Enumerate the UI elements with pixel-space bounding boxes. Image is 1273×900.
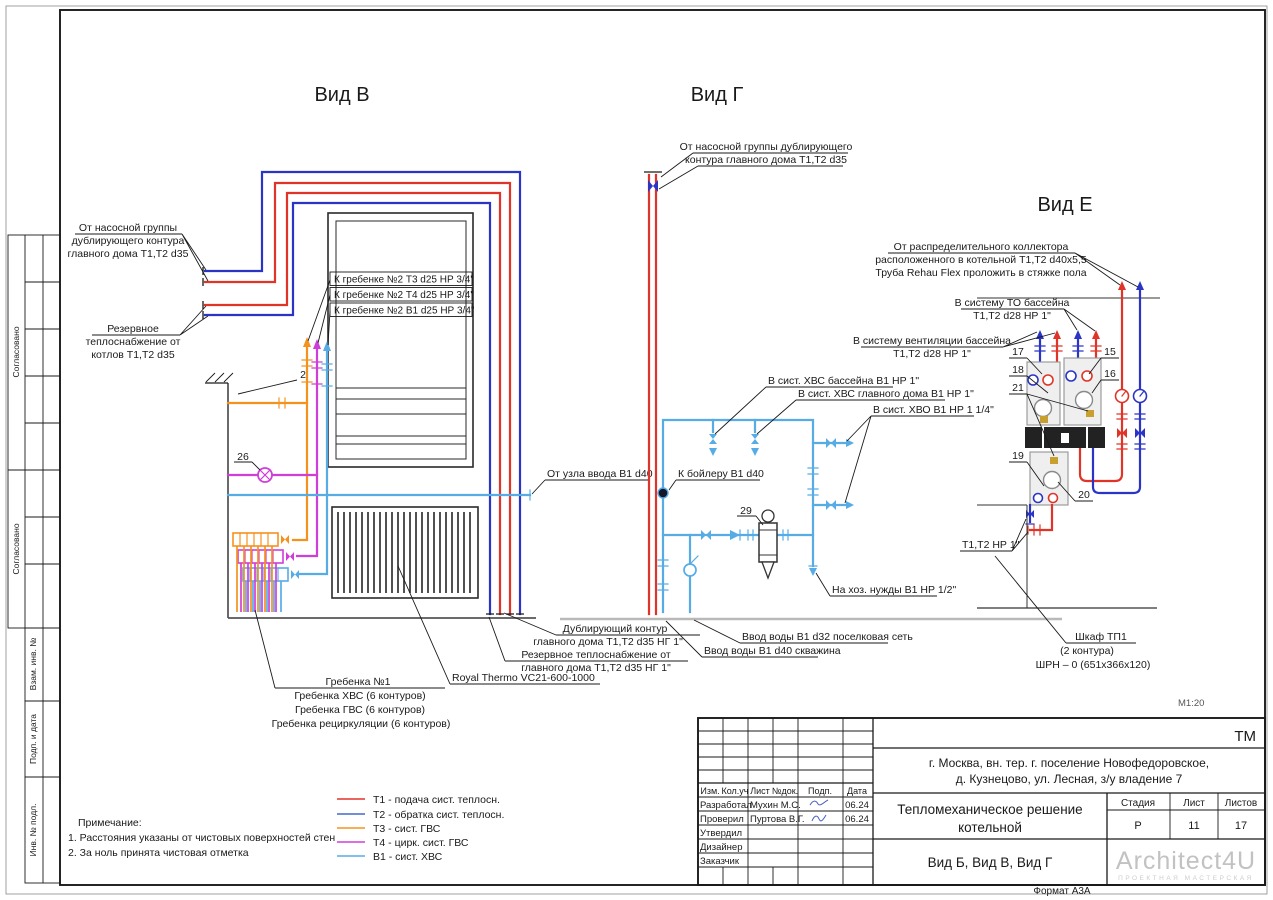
label-vvod-d32: Ввод воды В1 d32 поселковая сеть	[742, 631, 913, 643]
sheet-title: Вид Б, Вид В, Вид Г	[928, 855, 1053, 870]
legend-item-t1: Т1 - подача сист. теплосн.	[373, 794, 500, 806]
row-date-1: 06.24	[845, 814, 869, 825]
boiler-tap-point	[658, 488, 668, 498]
scale-note: М1:20	[1178, 698, 1204, 709]
label-greb2-t4: К гребенке №2 Т4 d25 НР 3/4"	[334, 289, 474, 301]
label-collector-2: расположенного в котельной Т1,Т2 d40х5,5	[875, 254, 1087, 266]
stage-value: Р	[1134, 820, 1141, 832]
format-note: Формат А3А	[1033, 886, 1091, 897]
label-manifold-1: Гребенка №1	[326, 676, 391, 688]
view-g-title: Вид Г	[691, 84, 744, 106]
pos-number-15: 15	[1104, 346, 1116, 358]
col-podp: Подп.	[808, 786, 832, 796]
label-pump-group-2: дублирующего контура	[72, 235, 185, 247]
address-line-1: г. Москва, вн. тер. г. поселение Новофед…	[929, 756, 1209, 770]
signature	[810, 800, 828, 805]
doc-code: ТМ	[1234, 728, 1256, 745]
row-role-1: Проверил	[700, 814, 744, 825]
notes: Примечание: 1. Расстояния указаны от чис…	[68, 817, 335, 859]
pos-number-26: 26	[237, 451, 249, 463]
stamp-agreed-2: Согласовано	[11, 523, 21, 574]
pos-number-20: 20	[1078, 489, 1090, 501]
label-hvo: В сист. ХВО В1 НР 1 1/4"	[873, 404, 994, 416]
pos-number-21: 21	[1012, 382, 1024, 394]
label-pump-group-1: От насосной группы	[79, 222, 177, 234]
doc-title-2: котельной	[958, 820, 1022, 835]
legend-item-t4: Т4 - цирк. сист. ГВС	[373, 837, 469, 849]
pump-icon	[1076, 392, 1093, 409]
notes-line-1: 1. Расстояния указаны от чистовых поверх…	[68, 832, 335, 844]
row-name-1: Пуртова В.Г.	[750, 814, 805, 825]
pos-number-29: 29	[740, 505, 752, 517]
stamp-inv-podl: Инв. № подл.	[28, 804, 38, 857]
label-greb2-t3: К гребенке №2 Т3 d25 НР 3/4"	[334, 274, 474, 286]
label-shkaf-1: Шкаф ТП1	[1075, 631, 1127, 643]
title-block: ТМ г. Москва, вн. тер. г. поселение Ново…	[698, 718, 1265, 885]
label-manifold-4: Гребенка рециркуляции (6 контуров)	[272, 718, 451, 730]
stamp-agreed-1: Согласовано	[11, 326, 21, 377]
stamp-vzam-inv: Взам. инв. №	[28, 638, 38, 691]
label-shkaf-2: (2 контура)	[1060, 645, 1114, 657]
label-dubl-1: Дублирующий контур	[563, 623, 668, 635]
label-vent-pool-2: Т1,Т2 d28 НР 1"	[893, 348, 971, 360]
pump-icon	[1035, 400, 1052, 417]
label-collector-1: От распределительного коллектора	[894, 241, 1069, 253]
stamp-podp-data: Подп. и дата	[28, 714, 38, 764]
pos-number-18: 18	[1012, 364, 1024, 376]
label-manifold-2: Гребенка ХВС (6 контуров)	[294, 690, 425, 702]
notes-line-2: 2. За ноль принята чистовая отметка	[68, 847, 249, 859]
notes-heading: Примечание:	[78, 817, 142, 829]
view-e-title: Вид Е	[1037, 194, 1092, 216]
row-role-3: Дизайнер	[700, 842, 743, 853]
signature	[812, 815, 826, 821]
listov-header: Листов	[1225, 798, 1258, 809]
label-uzel-vvoda: От узла ввода В1 d40	[547, 468, 653, 480]
list-value: 11	[1188, 820, 1199, 832]
pos-number-17: 17	[1012, 346, 1024, 358]
label-to-pool-1: В систему ТО бассейна	[955, 297, 1070, 309]
legend-item-t2: Т2 - обратка сист. теплосн.	[373, 809, 504, 821]
legend: Т1 - подача сист. теплосн. Т2 - обратка …	[337, 794, 504, 863]
legend-item-t3: Т3 - сист. ГВС	[373, 823, 441, 835]
col-koluch: Кол.уч	[722, 786, 749, 796]
doc-title-1: Тепломеханическое решение	[897, 802, 1082, 817]
legend-item-b1: В1 - сист. ХВС	[373, 851, 443, 863]
view-v: Вид В 2 К гребенке №2 Т3 d25 НР 3/4" К	[68, 84, 700, 730]
label-reserve-main-1: Резервное теплоснабжение от	[521, 649, 670, 661]
sidebar-stamps: Согласовано Согласовано Взам. инв. № Под…	[8, 235, 60, 883]
label-pump-group-3: главного дома Т1,Т2 d35	[68, 248, 189, 260]
view-v-title: Вид В	[314, 84, 369, 106]
logo: Architect4U	[1116, 847, 1256, 875]
label-vent-pool-1: В систему вентиляции бассейна	[853, 335, 1011, 347]
view-e: Вид Е	[853, 194, 1160, 671]
label-from-pump-2: контура главного дома Т1,Т2 d35	[685, 154, 847, 166]
label-boiler: К бойлеру В1 d40	[678, 468, 764, 480]
pos-number-19: 19	[1012, 450, 1024, 462]
label-dubl-2: главного дома Т1,Т2 d35 НГ 1"	[533, 636, 683, 648]
label-hvs-main: В сист. ХВС главного дома В1 НР 1"	[798, 388, 974, 400]
listov-value: 17	[1235, 820, 1247, 832]
row-date-0: 06.24	[845, 800, 869, 811]
label-vvod-d40: Ввод воды В1 d40 скважина	[704, 645, 841, 657]
address-line-2: д. Кузнецово, ул. Лесная, з/у владение 7	[956, 772, 1183, 786]
label-reserve-boilers-3: котлов Т1,Т2 d35	[91, 349, 174, 361]
filter-29	[759, 510, 777, 578]
pos-number-16: 16	[1104, 368, 1116, 380]
label-hoz: На хоз. нужды В1 НР 1/2"	[832, 584, 956, 596]
stage-header: Стадия	[1121, 798, 1155, 809]
row-role-2: Утвердил	[700, 828, 742, 839]
label-hvs-pool: В сист. ХВС бассейна В1 НР 1"	[768, 375, 919, 387]
label-reserve-boilers-1: Резервное	[107, 323, 159, 335]
drawing-sheet: Согласовано Согласовано Взам. инв. № Под…	[0, 0, 1273, 900]
row-name-0: Мухин М.С.	[750, 800, 801, 811]
radiator	[332, 507, 478, 598]
label-greb2-b1: К гребенке №2 В1 d25 НР 3/4"	[334, 305, 475, 317]
label-to-pool-2: Т1,Т2 d28 НР 1"	[973, 310, 1051, 322]
col-ndok: №док.	[772, 786, 798, 796]
row-role-0: Разработал	[700, 800, 752, 811]
list-header: Лист	[1183, 798, 1205, 809]
label-manifold-3: Гребенка ГВС (6 контуров)	[295, 704, 425, 716]
label-radiator-model: Royal Thermo VC21-600-1000	[452, 672, 595, 684]
pump-icon	[1044, 472, 1061, 489]
logo-subtitle: ПРОЕКТНАЯ МАСТЕРСКАЯ	[1118, 875, 1254, 882]
label-shkaf-3: ШРН – 0 (651х366х120)	[1036, 659, 1151, 671]
view-g: Вид Г От насосной группы дублирующего ко…	[560, 84, 1062, 657]
row-role-4: Заказчик	[700, 856, 740, 867]
col-data: Дата	[847, 786, 867, 796]
label-collector-3: Труба Rehau Flex проложить в стяжке пола	[875, 267, 1086, 279]
manifold-group	[233, 533, 299, 612]
label-t1t2-np1: Т1,Т2 НР 1"	[962, 539, 1020, 551]
label-reserve-boilers-2: теплоснабжение от	[86, 336, 181, 348]
col-izm: Изм.	[700, 786, 719, 796]
col-list: Лист	[750, 786, 770, 796]
pos-number-2: 2	[300, 369, 306, 381]
drawing-canvas: Согласовано Согласовано Взам. инв. № Под…	[0, 0, 1273, 900]
label-from-pump-1: От насосной группы дублирующего	[680, 141, 853, 153]
